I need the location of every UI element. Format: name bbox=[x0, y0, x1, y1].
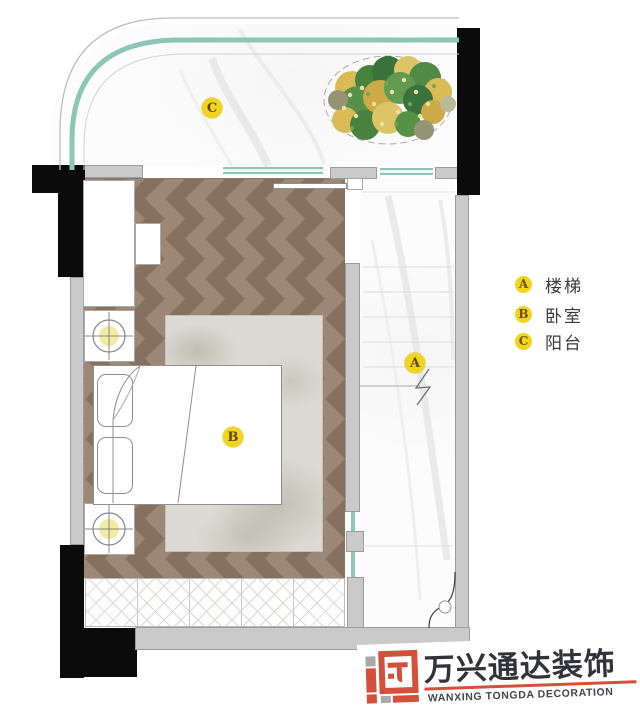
lamp-symbol-bottom bbox=[85, 505, 133, 553]
logo-icon-glyph-dot bbox=[388, 674, 394, 679]
legend-key-c: C bbox=[515, 333, 532, 350]
legend-row-bedroom: B 卧室 bbox=[515, 304, 583, 324]
plant-icon bbox=[324, 56, 456, 144]
legend-label-stairs: 楼梯 bbox=[545, 272, 583, 297]
marker-balcony: C bbox=[202, 98, 222, 118]
duvet-crease-line bbox=[178, 366, 196, 503]
duvet-fold-line bbox=[113, 366, 140, 420]
marker-stairs: A bbox=[405, 353, 425, 373]
legend-label-bedroom: 卧室 bbox=[545, 302, 583, 327]
logo-icon-glyph-stem bbox=[397, 667, 403, 682]
legend-row-stairs: A 楼梯 bbox=[515, 274, 583, 294]
legend-key-a: A bbox=[515, 276, 532, 293]
legend-label-balcony: 阳台 bbox=[545, 329, 583, 354]
duvet-edge-line bbox=[113, 366, 140, 503]
logo-icon-main-square bbox=[378, 650, 418, 694]
legend-row-balcony: C 阳台 bbox=[515, 331, 583, 351]
company-logo: 万兴通达装饰 WANXING TONGDA DECORATION bbox=[357, 635, 640, 706]
lamp-symbol-top bbox=[85, 312, 133, 360]
logo-icon-gray-sq bbox=[365, 656, 375, 666]
marker-bedroom: B bbox=[223, 427, 243, 447]
corner-post bbox=[439, 601, 451, 613]
logo-icon bbox=[365, 650, 419, 704]
corner-curve bbox=[429, 572, 455, 628]
logo-icon-red-bar2 bbox=[393, 695, 419, 703]
logo-icon-gray-sq2 bbox=[381, 696, 391, 703]
plan-linework bbox=[0, 0, 640, 706]
logo-icon-red-sq bbox=[367, 694, 377, 703]
logo-icon-red-tall bbox=[366, 668, 377, 692]
legend-key-b: B bbox=[515, 306, 532, 323]
floor-plan-canvas: C B A A 楼梯 B 卧室 C 阳台 万兴 bbox=[0, 0, 640, 706]
marble-vein bbox=[440, 200, 453, 360]
